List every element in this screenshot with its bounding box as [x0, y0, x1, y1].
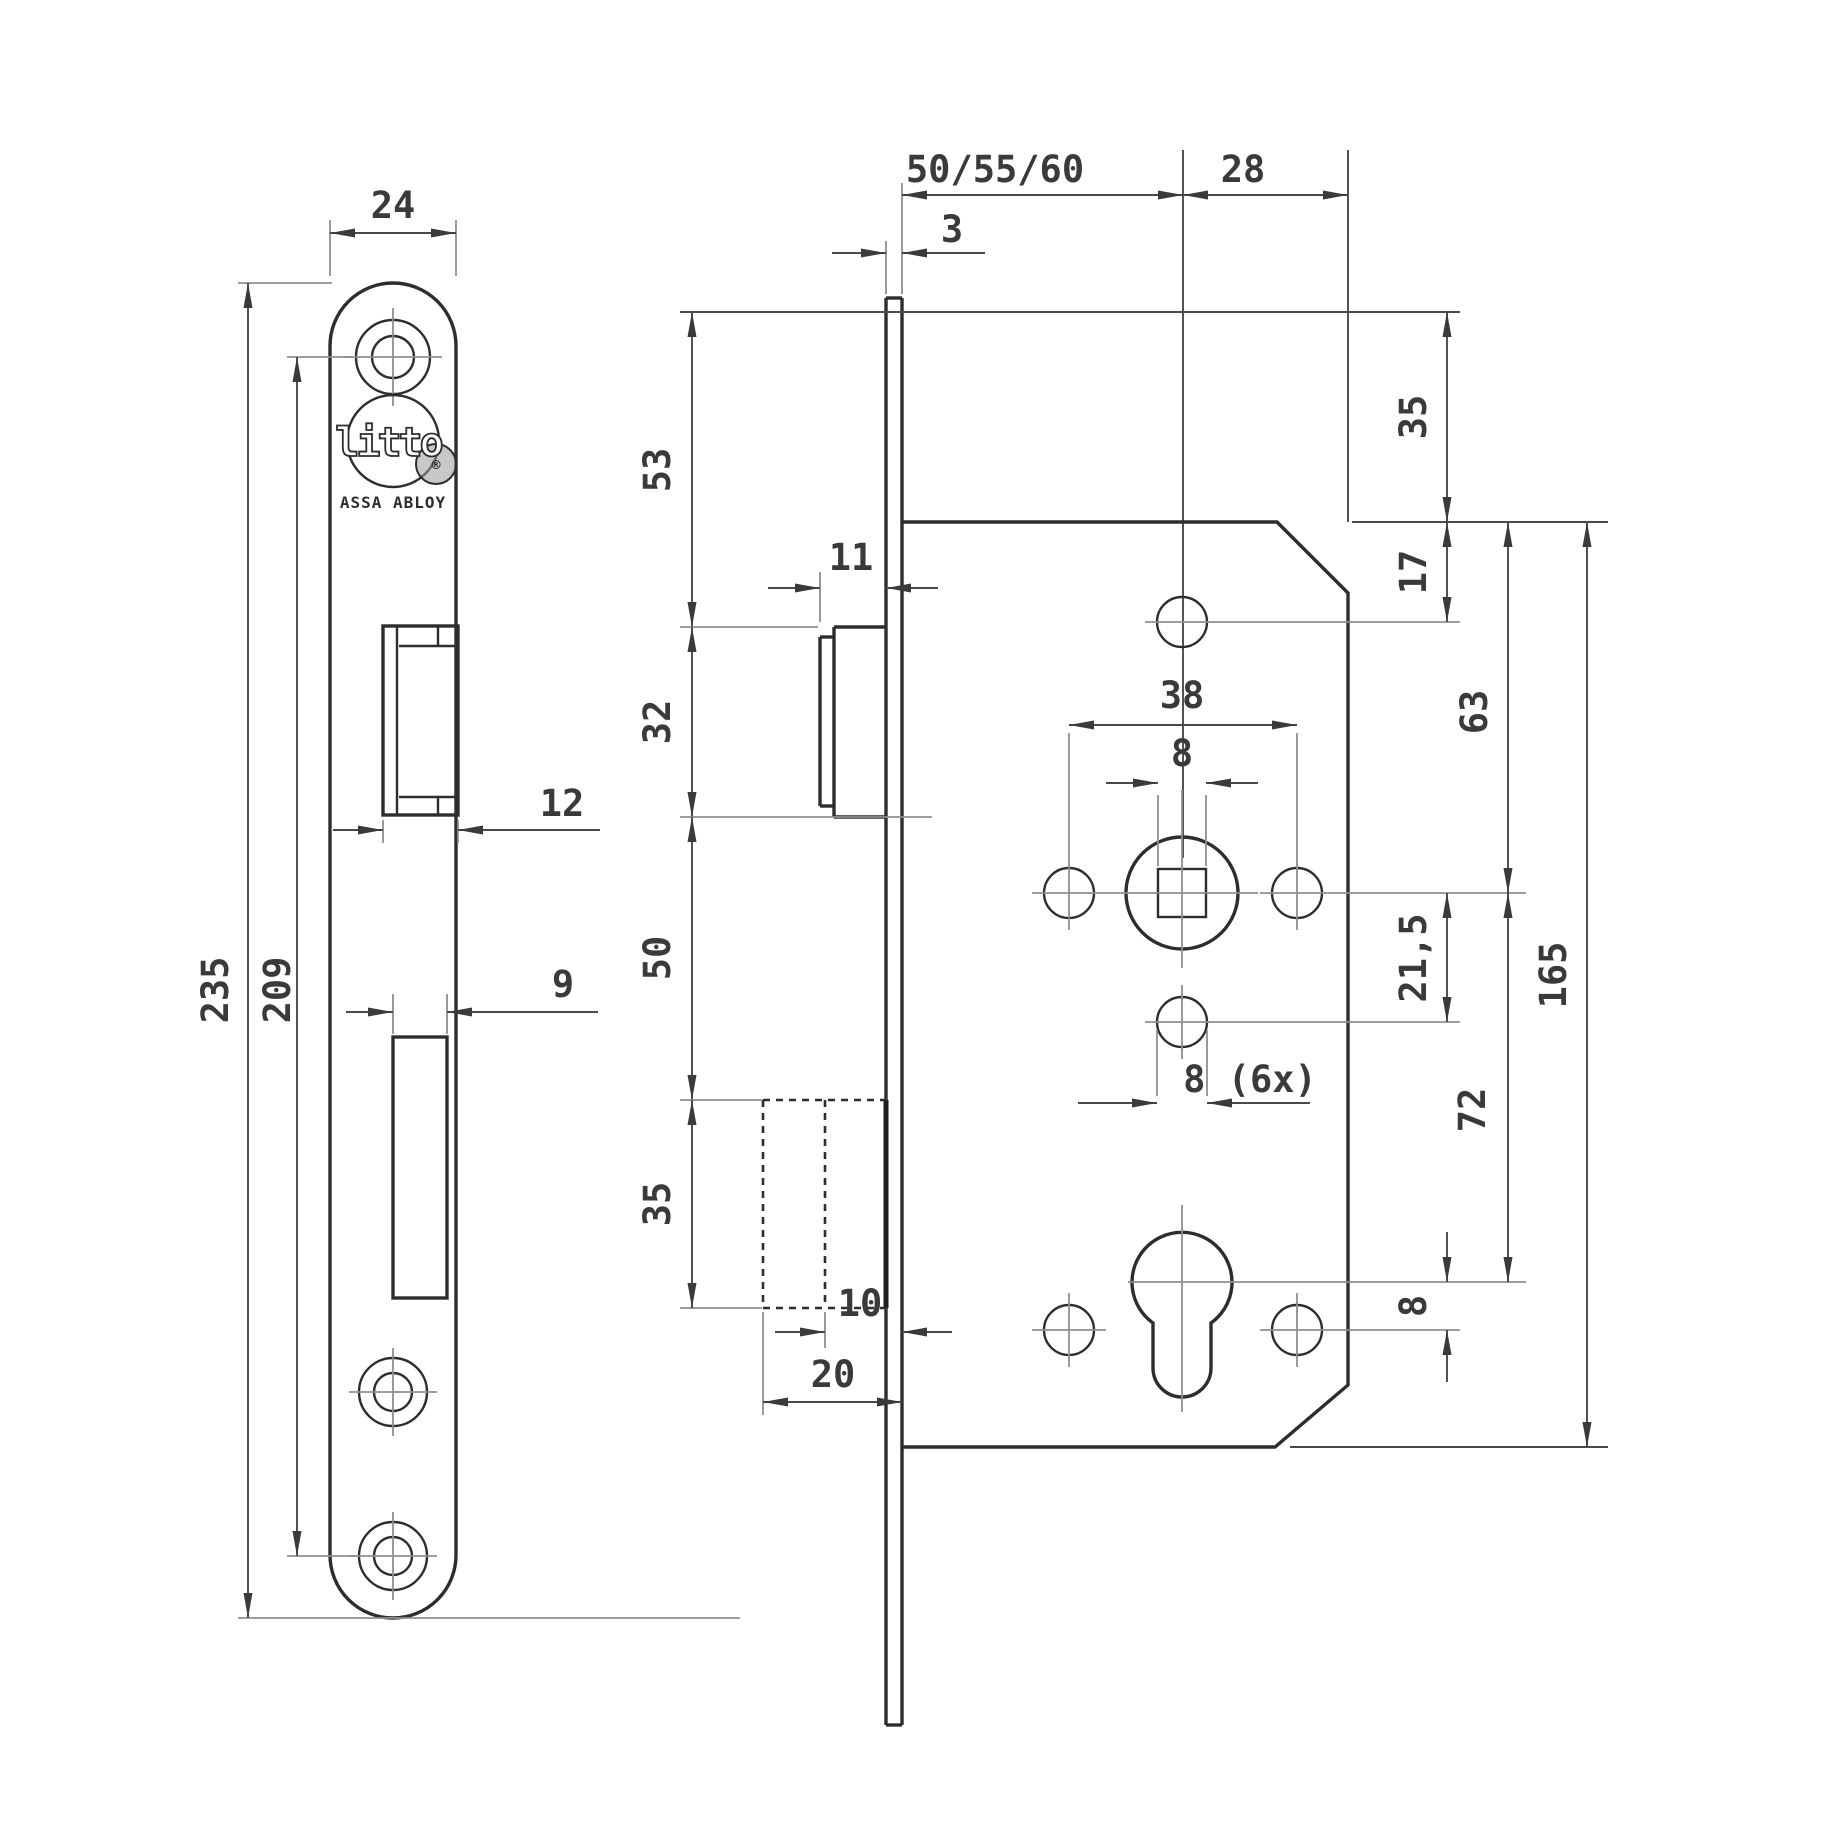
- dim-label-latch-height: 32: [636, 700, 679, 745]
- dim-label-backset: 50/55/60: [906, 148, 1084, 191]
- dim-label-spindle-to-lower-hole: 21,5: [1392, 913, 1435, 1002]
- dim-latch-protrusion: 11: [768, 536, 938, 622]
- dim-label-handle-hole-spacing: 38: [1160, 674, 1205, 717]
- dim-label-deadbolt-inner-offset: 10: [838, 1282, 883, 1325]
- dim-label-cylinder-to-bottom-hole: 8: [1392, 1295, 1435, 1317]
- dim-label-edge-to-top-hole: 17: [1392, 550, 1435, 595]
- dim-label-fixing-hole-note: 8 (6x): [1183, 1058, 1317, 1101]
- dim-label-deadbolt-height: 35: [636, 1182, 679, 1227]
- logo-subtext: ASSA ABLOY: [340, 493, 446, 512]
- dim-label-top-to-latch: 53: [636, 448, 679, 493]
- dim-plate-thickness: 3: [832, 183, 985, 294]
- dim-latch-cutout-width: 12: [333, 782, 600, 843]
- dim-label-top-to-spindle: 63: [1453, 690, 1496, 735]
- dim-label-deadbolt-cutout-width: 9: [552, 963, 574, 1006]
- faceplate-top-screw-hole: [344, 308, 442, 406]
- dim-deadbolt-cutout-width: 9: [346, 963, 598, 1034]
- logo-registered-mark: ®: [431, 456, 441, 474]
- dim-spindle-to-lower-hole: 21,5: [1392, 893, 1447, 1022]
- dim-deadbolt-pocket-depth: 20: [763, 1312, 902, 1415]
- lock-side-view: [680, 298, 1460, 1725]
- dim-label-faceplate-length: 235: [194, 957, 237, 1024]
- deadbolt-side-hidden: [763, 1100, 886, 1308]
- dim-label-latch-protrusion: 11: [829, 536, 874, 579]
- top-fixing-hole: [1145, 597, 1460, 647]
- dim-latch-to-deadbolt: 50: [636, 817, 692, 1100]
- dim-deadbolt-inner-offset: 10: [775, 1282, 952, 1348]
- dim-backset: 50/55/60: [902, 148, 1183, 195]
- faceplate-bottom-screw-hole: [349, 1512, 437, 1600]
- dim-spindle-to-cylinder: 72: [1451, 893, 1508, 1282]
- faceplate-edge-strip: [886, 298, 902, 1725]
- dim-cylinder-to-bottom-hole: 8: [1392, 1232, 1447, 1382]
- dim-screw-spacing: 209: [256, 357, 355, 1556]
- euro-cylinder-hole: [1128, 1205, 1526, 1412]
- brand-logo: litto ® ASSA ABLOY: [335, 395, 456, 512]
- dim-top-margin: 35: [1352, 312, 1608, 522]
- dim-edge-to-top-hole: 17: [1392, 522, 1447, 622]
- deadbolt-cutout: [393, 1037, 447, 1298]
- dim-label-case-height: 165: [1532, 942, 1575, 1009]
- drawing-page: litto ® ASSA ABLOY: [0, 0, 1838, 1838]
- dim-label-screw-spacing: 209: [256, 957, 299, 1024]
- spindle-side-holes: [1032, 733, 1526, 930]
- dim-edge-to-spindle: 28: [1183, 148, 1348, 858]
- dim-label-latch-to-deadbolt: 50: [636, 936, 679, 981]
- dim-top-to-spindle: 63: [1453, 522, 1508, 893]
- dim-label-deadbolt-pocket-depth: 20: [811, 1353, 856, 1396]
- dim-top-to-latch: 53: [636, 312, 818, 627]
- spindle-hole: [1106, 790, 1258, 968]
- dim-faceplate-width: 24: [330, 184, 456, 276]
- faceplate-middle-screw-hole: [349, 1348, 437, 1436]
- dim-label-plate-thickness: 3: [941, 208, 963, 251]
- dim-case-height: 165: [1290, 522, 1608, 1447]
- latch-bolt-side: [820, 627, 886, 817]
- dim-label-edge-to-spindle: 28: [1221, 148, 1266, 191]
- dim-deadbolt-height: 35: [636, 1100, 762, 1308]
- dim-label-top-margin: 35: [1392, 395, 1435, 440]
- logo-text: litto: [335, 420, 442, 466]
- lock-case-outline: [902, 522, 1348, 1447]
- dim-label-spindle-to-cylinder: 72: [1451, 1088, 1494, 1133]
- dim-label-faceplate-width: 24: [371, 184, 416, 227]
- dim-label-latch-cutout-width: 12: [540, 782, 585, 825]
- dim-label-spindle-square: 8: [1171, 732, 1193, 775]
- faceplate-front-view: litto ® ASSA ABLOY: [330, 283, 458, 1618]
- latch-cutout: [383, 626, 458, 815]
- lock-technical-drawing: litto ® ASSA ABLOY: [0, 0, 1838, 1838]
